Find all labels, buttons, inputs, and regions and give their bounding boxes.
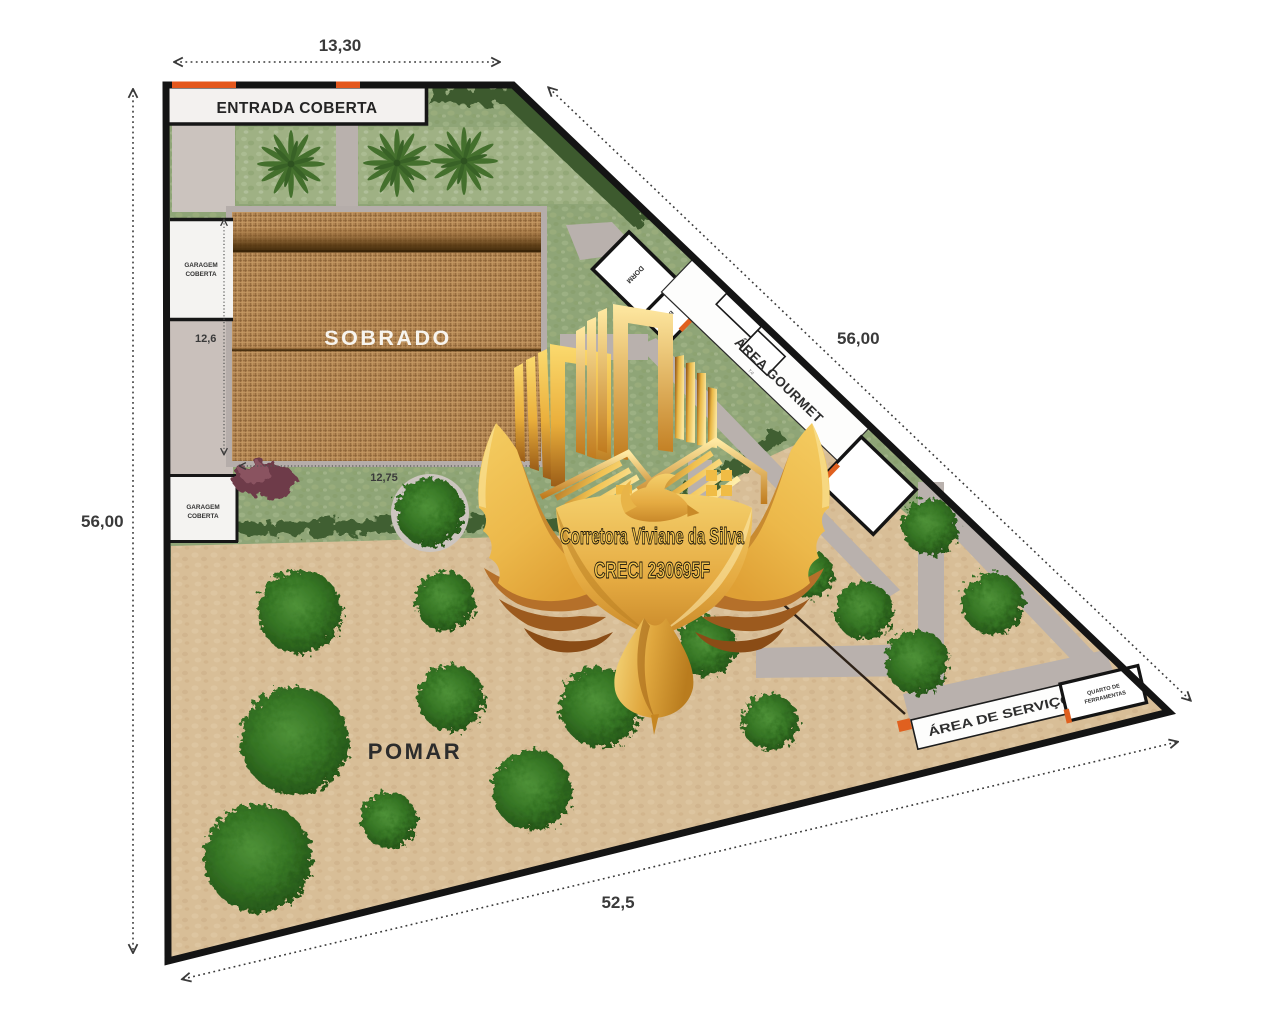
svg-text:56,00: 56,00 (81, 512, 124, 531)
svg-text:Corretora Viviane da Silva: Corretora Viviane da Silva (560, 523, 744, 549)
svg-text:GARAGEM: GARAGEM (186, 504, 219, 511)
svg-text:CRECI 230695F: CRECI 230695F (594, 557, 710, 583)
svg-text:SOBRADO: SOBRADO (324, 326, 451, 350)
svg-text:COBERTA: COBERTA (185, 271, 217, 278)
svg-text:12,6: 12,6 (195, 333, 216, 345)
svg-text:56,00: 56,00 (837, 329, 880, 348)
svg-text:GARAGEM: GARAGEM (184, 262, 217, 269)
svg-text:COBERTA: COBERTA (187, 513, 219, 520)
svg-text:12,75: 12,75 (370, 472, 398, 484)
svg-text:ENTRADA COBERTA: ENTRADA COBERTA (217, 100, 378, 117)
svg-text:POMAR: POMAR (368, 739, 462, 764)
svg-text:52,5: 52,5 (601, 893, 634, 912)
svg-text:13,30: 13,30 (319, 36, 362, 55)
